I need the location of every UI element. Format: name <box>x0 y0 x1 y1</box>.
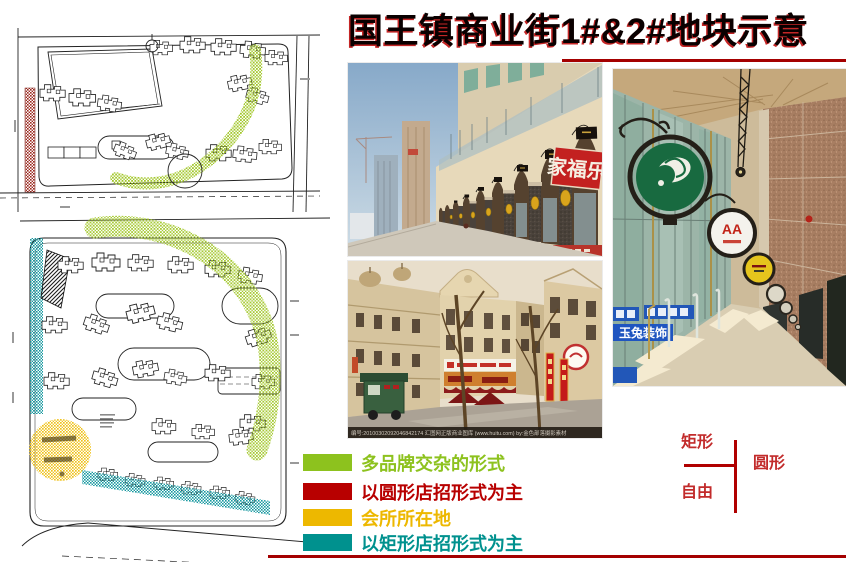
street-cart <box>360 373 408 420</box>
plan2-bottom-roads <box>22 523 330 562</box>
blue-sign-text: 玉兔装饰 <box>619 325 667 340</box>
right-building <box>544 269 602 403</box>
legend-item-round-signs: 以圆形店招形式为主 <box>303 483 523 500</box>
legend-item-clubhouse: 会所所在地 <box>303 509 451 526</box>
shape-diagram-vertical-line <box>734 440 737 513</box>
photo-euro-street: 编号:20100302092046842174 汇图网正版商业图库 (www.h… <box>348 261 602 438</box>
top-right-divider-line <box>562 59 846 62</box>
watermark-text: 编号:20100302092046842174 汇图网正版商业图库 (www.h… <box>351 429 567 437</box>
plan2-teal-strip-left <box>30 238 43 414</box>
plan1-red-hatch-strip <box>25 88 35 192</box>
slide: 国王镇商业街1#&2#地块示意 <box>0 0 846 568</box>
aa-sign-text: AA <box>722 221 742 237</box>
plan2-top-road <box>20 218 330 221</box>
legend-swatch-teal <box>303 534 352 551</box>
legend-label: 会所所在地 <box>361 505 451 531</box>
page-title: 国王镇商业街1#&2#地块示意 <box>348 3 809 54</box>
photo-arcade-street: 家福乐 <box>348 63 602 256</box>
legend-item-rect-signs: 以矩形店招形式为主 <box>303 534 523 551</box>
bottom-divider-line <box>268 555 846 558</box>
shape-label-rect: 矩形 <box>681 428 713 452</box>
legend-swatch-yellow <box>303 509 352 526</box>
plan2-tiny-text-block <box>100 414 115 428</box>
alarm-dot <box>806 216 813 223</box>
site-plan-2 <box>0 212 330 562</box>
photo-corridor: AA 玉兔装饰 <box>613 69 846 386</box>
chandelier-bulb <box>739 170 742 173</box>
legend-label: 以圆形店招形式为主 <box>361 479 523 505</box>
plan2-yellow-club-area <box>29 419 91 481</box>
pedestrian <box>464 224 469 229</box>
shape-label-circle: 圆形 <box>753 449 785 473</box>
legend-label: 多品牌交杂的形式 <box>361 450 505 476</box>
shape-diagram-horizontal-line <box>684 464 737 467</box>
site-plan-1 <box>0 20 320 212</box>
legend-swatch-red <box>303 483 352 500</box>
shape-label-free: 自由 <box>681 478 713 502</box>
plan1-green-arc-highlight <box>116 50 256 183</box>
legend-label: 以矩形店招形式为主 <box>361 530 523 556</box>
legend-swatch-green <box>303 454 352 471</box>
orange-banner <box>352 357 358 373</box>
legend-item-multi-brand: 多品牌交杂的形式 <box>303 454 505 471</box>
